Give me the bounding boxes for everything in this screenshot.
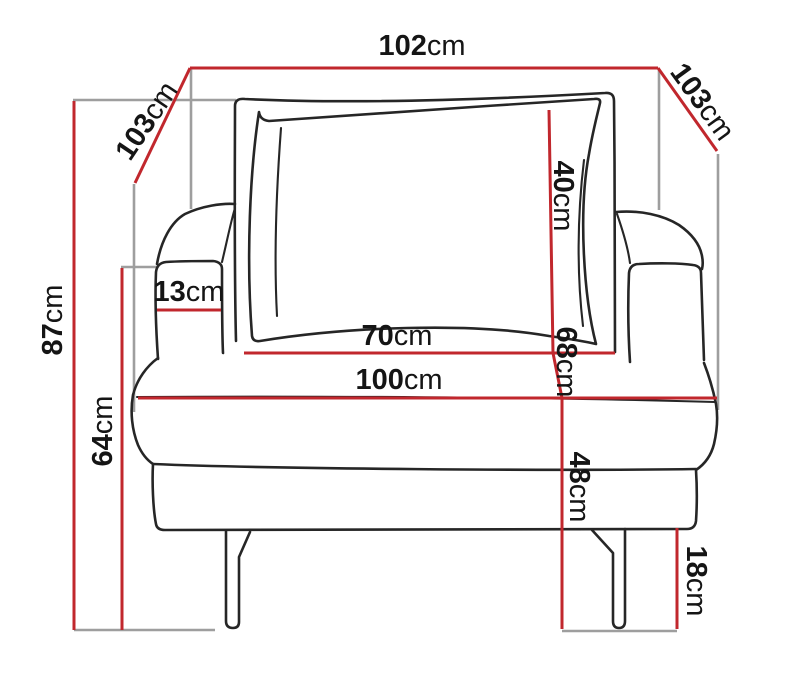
armchair-dimension-diagram: 102cm 103cm 103cm 87cm 64cm 13cm 40cm 70… [0,0,800,679]
label-backrest-cushion-height: 40cm [547,161,579,232]
dimension-diagram-canvas: 102cm 103cm 103cm 87cm 64cm 13cm 40cm 70… [0,0,800,679]
armchair-right-armrest-front [628,263,704,362]
label-armrest-height: 64cm [87,396,119,467]
label-inner-seat-width: 70cm [362,320,433,352]
label-armrest-width: 13cm [154,276,225,308]
armchair-left-armrest-inner-edge [222,208,235,262]
label-overall-width-top: 102cm [378,30,465,62]
label-diagonal-right: 103cm [663,57,740,146]
label-seat-overall-width: 100cm [355,364,442,396]
armchair-left-leg [226,531,250,628]
label-overall-height: 87cm [37,285,69,356]
label-backrest-height: 68cm [550,327,582,398]
label-diagonal-left: 103cm [109,76,184,166]
armchair-drawing [132,93,717,628]
armchair-right-armrest-inner-edge [617,214,630,263]
armchair-base-seam [153,464,696,470]
label-seat-height: 48cm [563,452,595,523]
armchair-right-leg [592,529,625,628]
label-leg-height: 18cm [680,546,712,617]
